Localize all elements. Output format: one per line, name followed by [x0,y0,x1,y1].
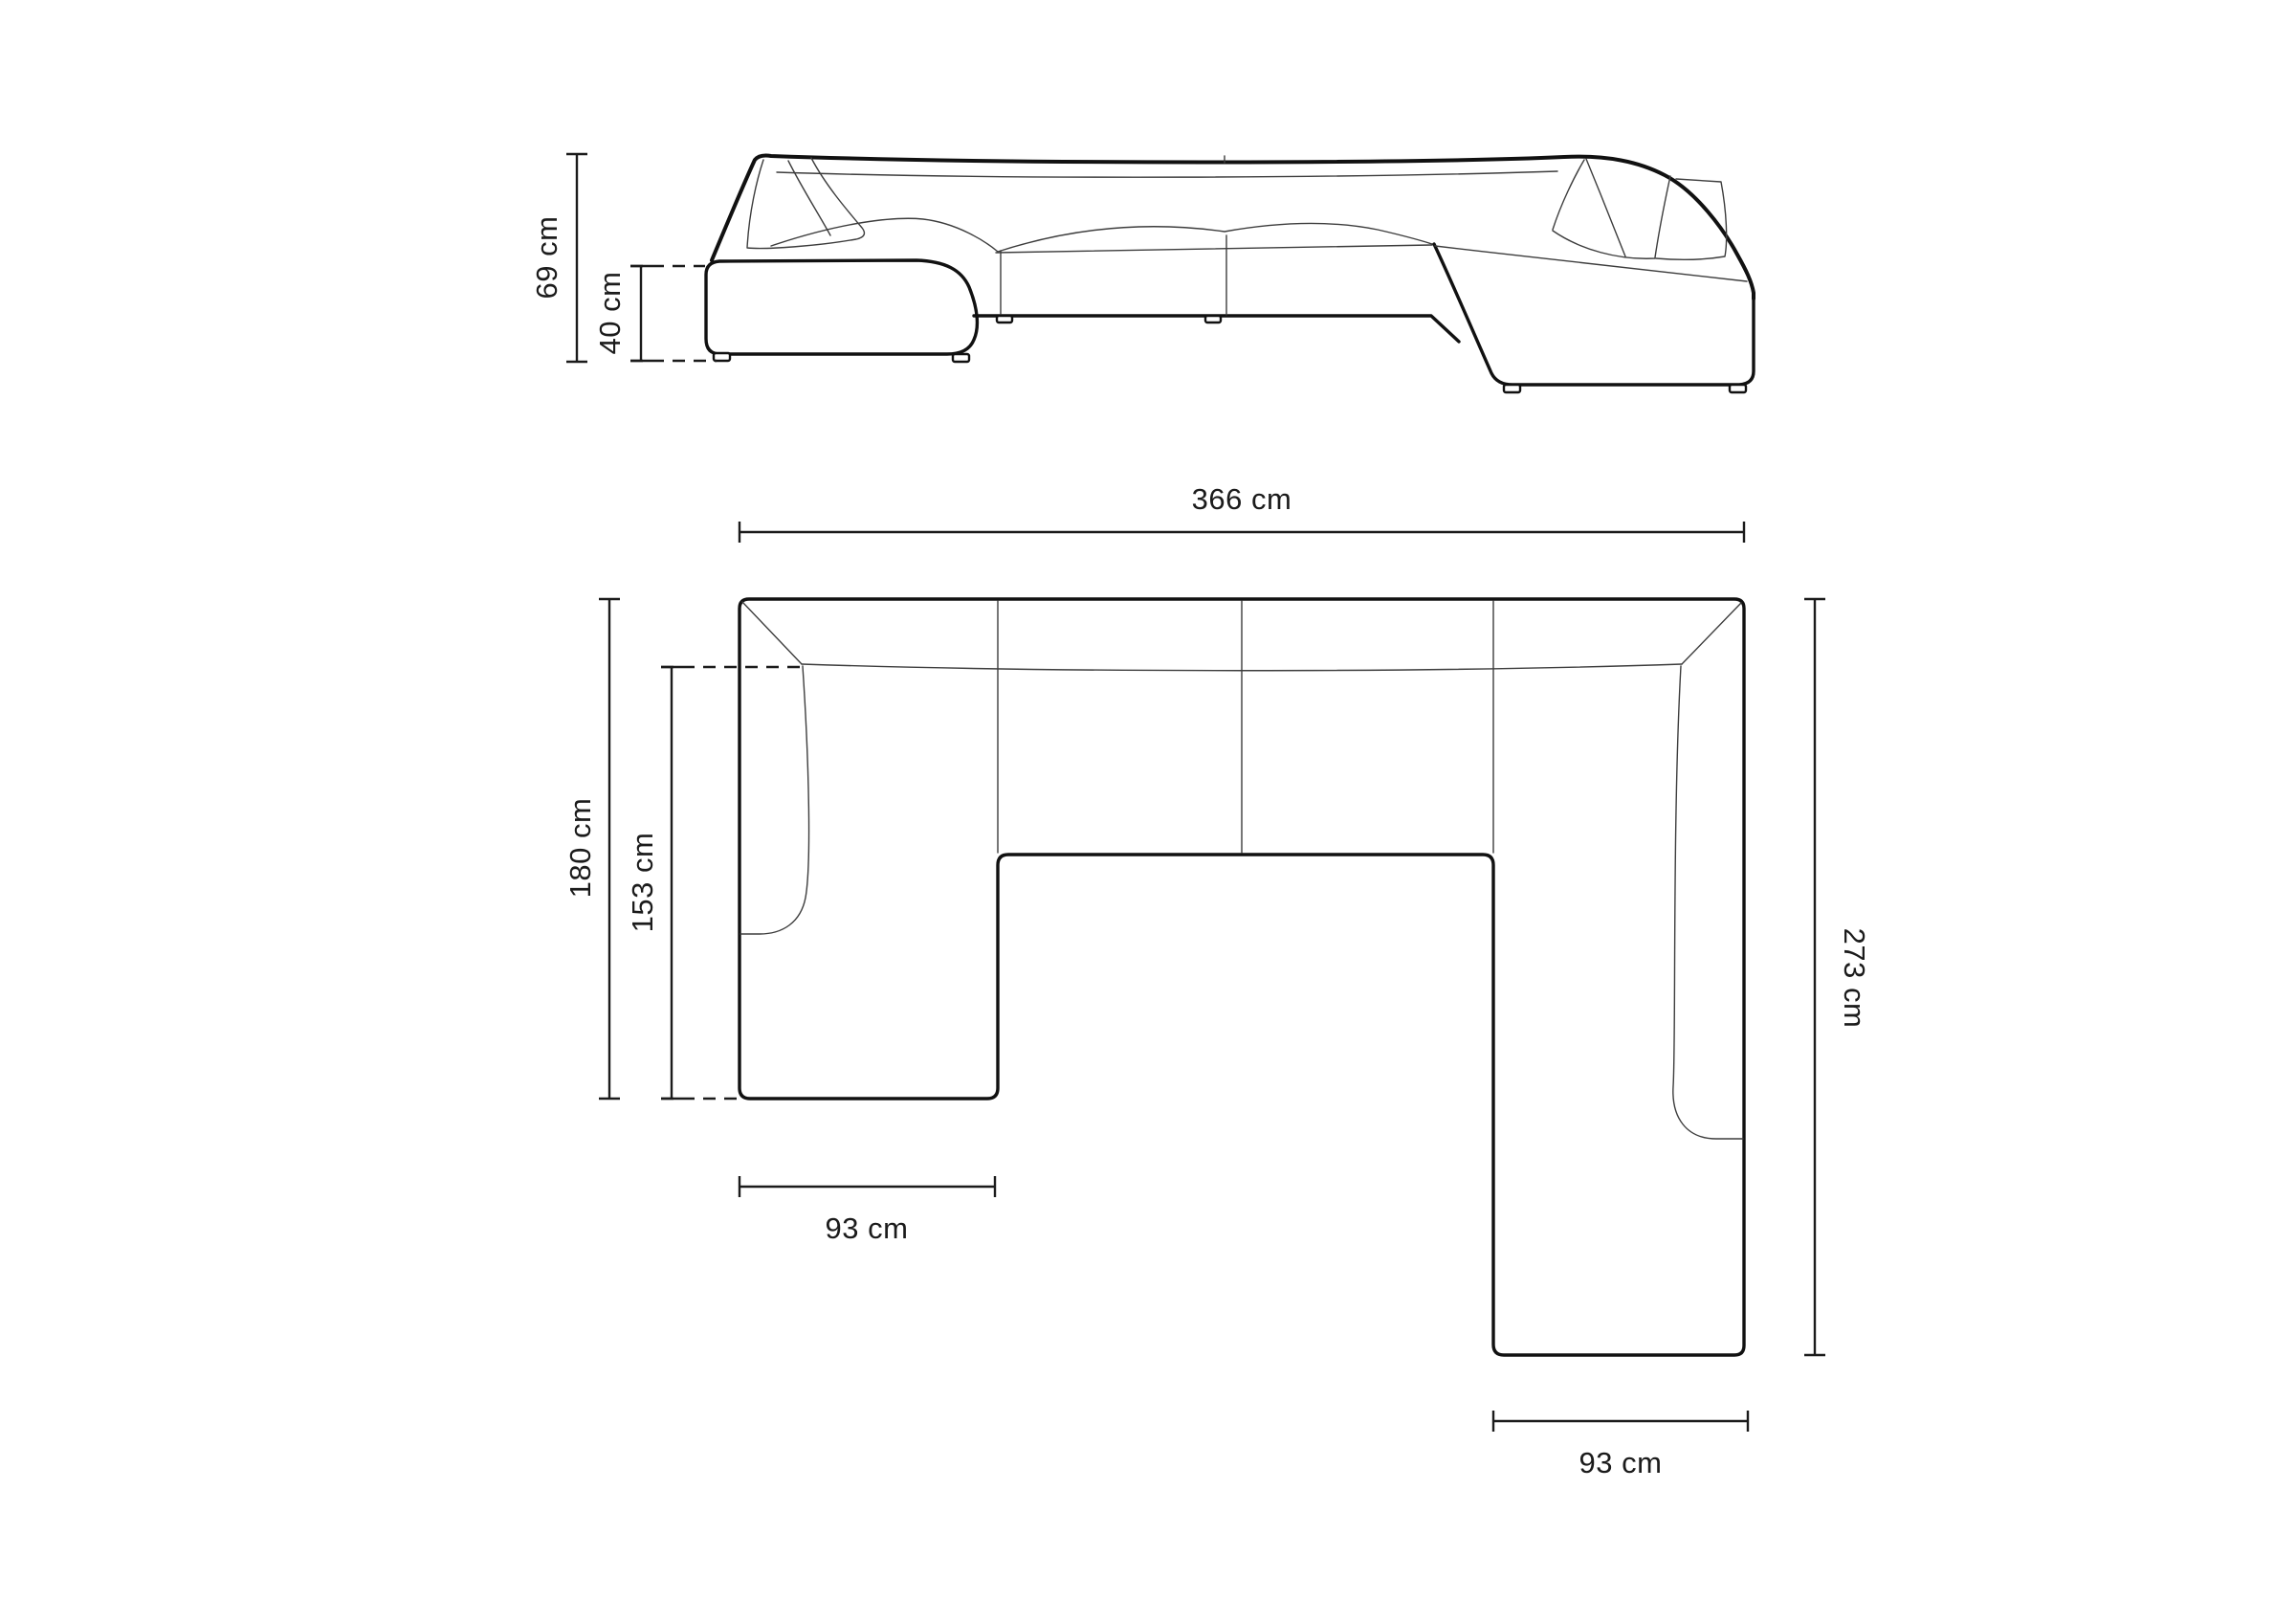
dimension-width-total: 366 cm [740,482,1744,543]
dimension-height-total: 69 cm [530,154,587,362]
dimension-depth-right-total-label: 273 cm [1838,928,1871,1029]
dimension-depth-right-total-line [1804,599,1825,1355]
elevation-foot-5 [1504,385,1520,392]
dimension-height-total-label: 69 cm [530,216,563,300]
dimension-seat-height-line [630,266,651,361]
dimension-height-total-line [566,154,587,362]
elevation-right-chaise [1434,244,1754,385]
elevation-foot-3 [997,316,1012,322]
dimension-depth-left-inner: 153 cm [626,667,802,1099]
dimension-chaise-right-width: 93 cm [1493,1411,1748,1479]
plan-corner-diagonal-left [742,602,802,664]
floor-plan-view: 366 cm 180 cm 153 cm 93 cm 273 cm 93 cm [563,482,1871,1479]
elevation-sofa-drawing [706,156,1754,393]
dimension-chaise-left-width-label: 93 cm [826,1212,909,1245]
elevation-backrest-top-inner-line [777,171,1557,177]
dimension-chaise-left-width: 93 cm [740,1176,995,1245]
dimension-chaise-left-width-line [740,1176,995,1197]
dimension-depth-left-inner-label: 153 cm [626,833,659,933]
dimension-depth-left-inner-line [661,667,682,1099]
plan-right-arm-line [1673,666,1743,1139]
dimension-seat-height: 40 cm [593,266,717,361]
dimension-depth-right-total: 273 cm [1804,599,1871,1355]
dimension-chaise-right-width-label: 93 cm [1579,1446,1663,1479]
elevation-left-module-face [706,260,977,354]
elevation-seat-deck-line [996,245,1432,253]
dimension-depth-left-total-label: 180 cm [563,798,597,899]
dimension-width-total-label: 366 cm [1192,482,1292,516]
dimension-width-total-line [740,522,1744,543]
elevation-foot-4 [1205,316,1221,322]
dimension-depth-left-total: 180 cm [563,599,620,1099]
dimension-chaise-right-width-line [1493,1411,1748,1432]
elevation-right-cushion [1553,159,1670,258]
sofa-dimension-diagram: 69 cm 40 cm [0,0,2296,1623]
elevation-foot-2 [953,354,969,362]
dimension-depth-left-total-line [599,599,620,1099]
elevation-foot-6 [1730,385,1746,392]
plan-left-arm-line [740,666,809,934]
dimension-seat-height-label: 40 cm [593,272,627,355]
plan-corner-diagonal-right [1682,603,1741,664]
diagram-svg: 69 cm 40 cm [0,0,2296,1623]
elevation-right-chaise-top-edge [1435,246,1747,281]
front-elevation-view: 69 cm 40 cm [530,154,1754,392]
